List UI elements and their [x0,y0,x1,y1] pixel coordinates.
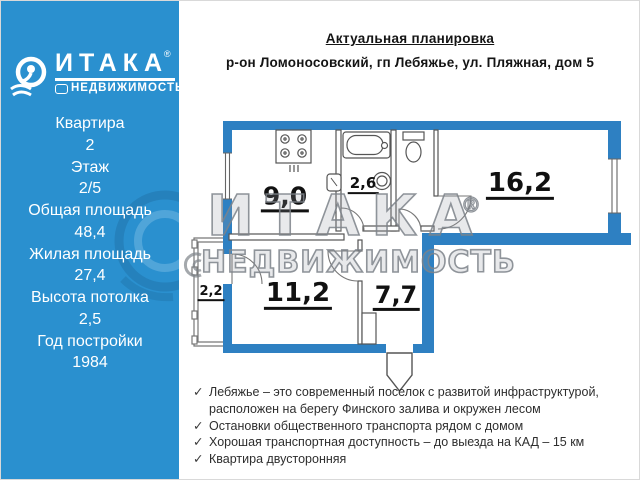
address-subtitle: р-он Ломоносовский, гп Лебяжье, ул. Пляж… [183,55,637,70]
detail-label: Высота потолка [1,287,179,309]
watermark-wave-icon [179,249,205,281]
check-icon: ✓ [193,434,209,451]
feature-text: Остановки общественного транспорта рядом… [209,418,635,435]
feature-text: Хорошая транспортная доступность – до вы… [209,434,635,451]
detail-value: 48,4 [1,222,179,244]
detail-value: 27,4 [1,265,179,287]
kitchen-sink-icon [327,174,341,191]
room-area-kitchen: 9,0 [261,183,309,212]
detail-value: 2 [1,135,179,157]
room-area-hallway: 7,7 [373,283,420,311]
feature-item: ✓ Остановки общественного транспорта ряд… [193,418,635,435]
logo-subtitle: НЕДВИЖИМОСТЬ [71,83,179,95]
feature-text: Квартира двусторонняя [209,451,635,468]
bathtub-icon [343,132,390,158]
floorplan: 9,0 2,6 16,2 11,2 7,7 2,2 [181,101,640,391]
detail-label: Жилая площадь [1,244,179,266]
feature-list: ✓ Лебяжье – это современный поселок с ра… [193,384,635,468]
logo-badge [55,84,68,94]
feature-text: Лебяжье – это современный поселок с разв… [209,384,635,418]
detail-label: Этаж [1,157,179,179]
apartment-details: Квартира 2 Этаж 2/5 Общая площадь 48,4 Ж… [1,113,179,374]
detail-value: 2/5 [1,178,179,200]
toilet-icon [403,132,424,162]
floorplan-drawing [181,101,640,391]
header: Актуальная планировка р-он Ломоносовский… [183,31,637,70]
room-area-living: 16,2 [486,170,554,200]
feature-item: ✓ Хорошая транспортная доступность – до … [193,434,635,451]
flyer-page: ИТАКА® НЕДВИЖИМОСТЬ Квартира 2 Этаж 2/5 … [0,0,640,480]
detail-label: Квартира [1,113,179,135]
detail-label: Общая площадь [1,200,179,222]
feature-item: ✓ Квартира двусторонняя [193,451,635,468]
sidebar: ИТАКА® НЕДВИЖИМОСТЬ Квартира 2 Этаж 2/5 … [1,1,179,480]
detail-value: 2,5 [1,309,179,331]
room-area-bedroom: 11,2 [264,280,332,310]
check-icon: ✓ [193,418,209,435]
room-area-bathroom: 2,6 [348,176,379,194]
registered-mark: ® [164,49,171,59]
wave-logo-icon [9,53,53,103]
logo-brand-row: ИТАКА® [55,51,175,81]
check-icon: ✓ [193,451,209,468]
detail-label: Год постройки [1,331,179,353]
detail-value: 1984 [1,352,179,374]
stove-icon [276,130,311,172]
room-area-balcony: 2,2 [197,285,224,301]
check-icon: ✓ [193,384,209,418]
page-title: Актуальная планировка [183,31,637,46]
interior-walls [229,130,438,344]
feature-item: ✓ Лебяжье – это современный поселок с ра… [193,384,635,418]
logo-brand-text: ИТАКА [55,49,168,77]
itaka-logo: ИТАКА® НЕДВИЖИМОСТЬ [7,51,175,107]
